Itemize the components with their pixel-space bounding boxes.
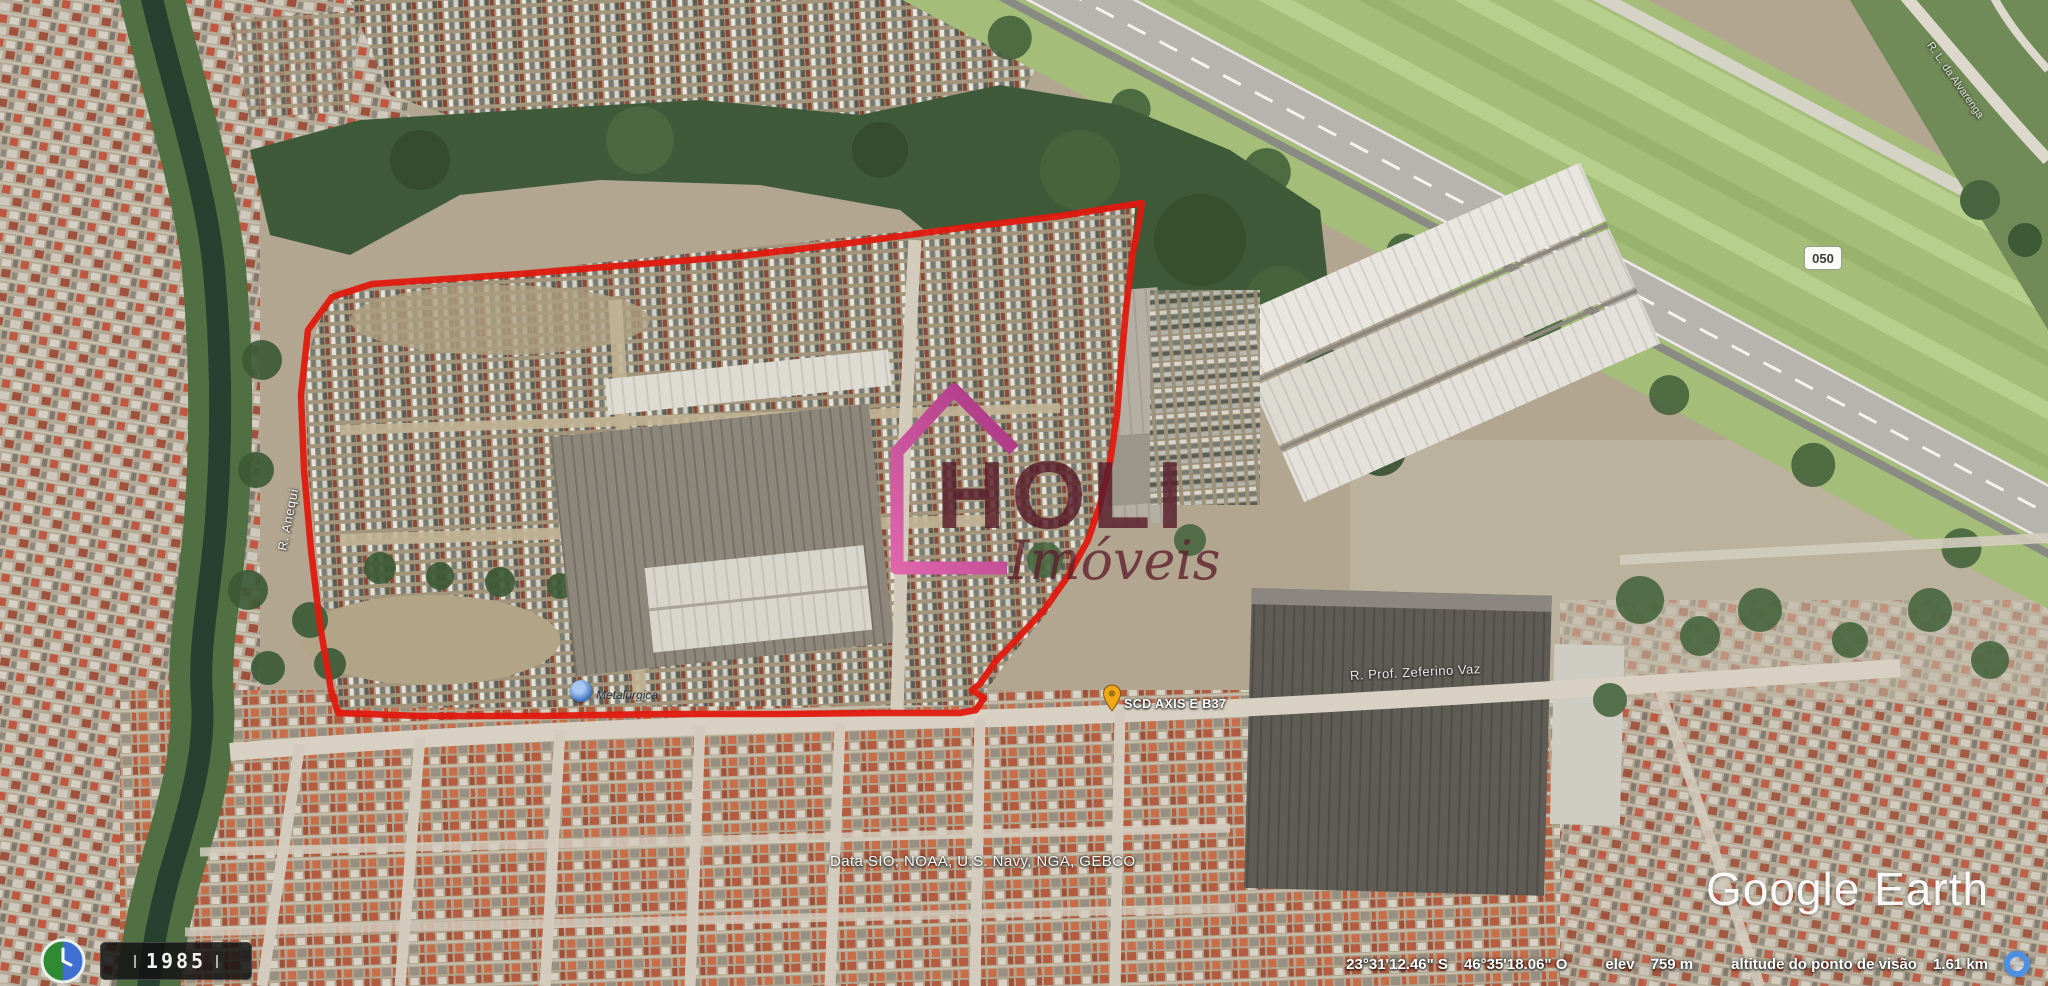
imagery-attribution: Data SIO, NOAA, U.S. Navy, NGA, GEBCO [830, 853, 1135, 870]
elevation-value: 759 m [1651, 956, 1694, 973]
longitude-readout: 46°35'18.06" O [1464, 956, 1567, 973]
time-slider-year-box[interactable]: 1985 [100, 942, 252, 980]
eye-altitude-label: altitude do ponto de visão [1731, 956, 1917, 973]
pushpin-icon[interactable] [1102, 684, 1122, 712]
holi-logo-subtitle: Imóveis [1008, 534, 1221, 588]
clock-icon [40, 938, 86, 984]
view-indicator-icon[interactable] [2004, 951, 2030, 977]
road-shield-badge: 050 [1804, 246, 1842, 270]
status-bar: 23°31'12.46" S 46°35'18.06" O elev 759 m… [1346, 948, 2030, 980]
pushpin-label[interactable]: SCD AXIS E B37 [1124, 697, 1226, 711]
year-value: 1985 [146, 949, 206, 973]
slider-tick [134, 955, 136, 968]
google-earth-viewport[interactable]: HOLI Imóveis R. Anequi R. Prof. Zeferino… [0, 0, 2048, 986]
transit-poi-label: Metalúrgica [596, 688, 658, 702]
transit-poi-icon[interactable] [570, 680, 592, 702]
historical-imagery-control[interactable]: 1985 [40, 938, 252, 984]
latitude-readout: 23°31'12.46" S [1346, 956, 1448, 973]
eye-altitude-value: 1.61 km [1933, 956, 1988, 973]
elevation-label: elev [1605, 956, 1634, 973]
slider-tick [216, 955, 218, 968]
google-earth-watermark: Google Earth [1706, 862, 1989, 916]
